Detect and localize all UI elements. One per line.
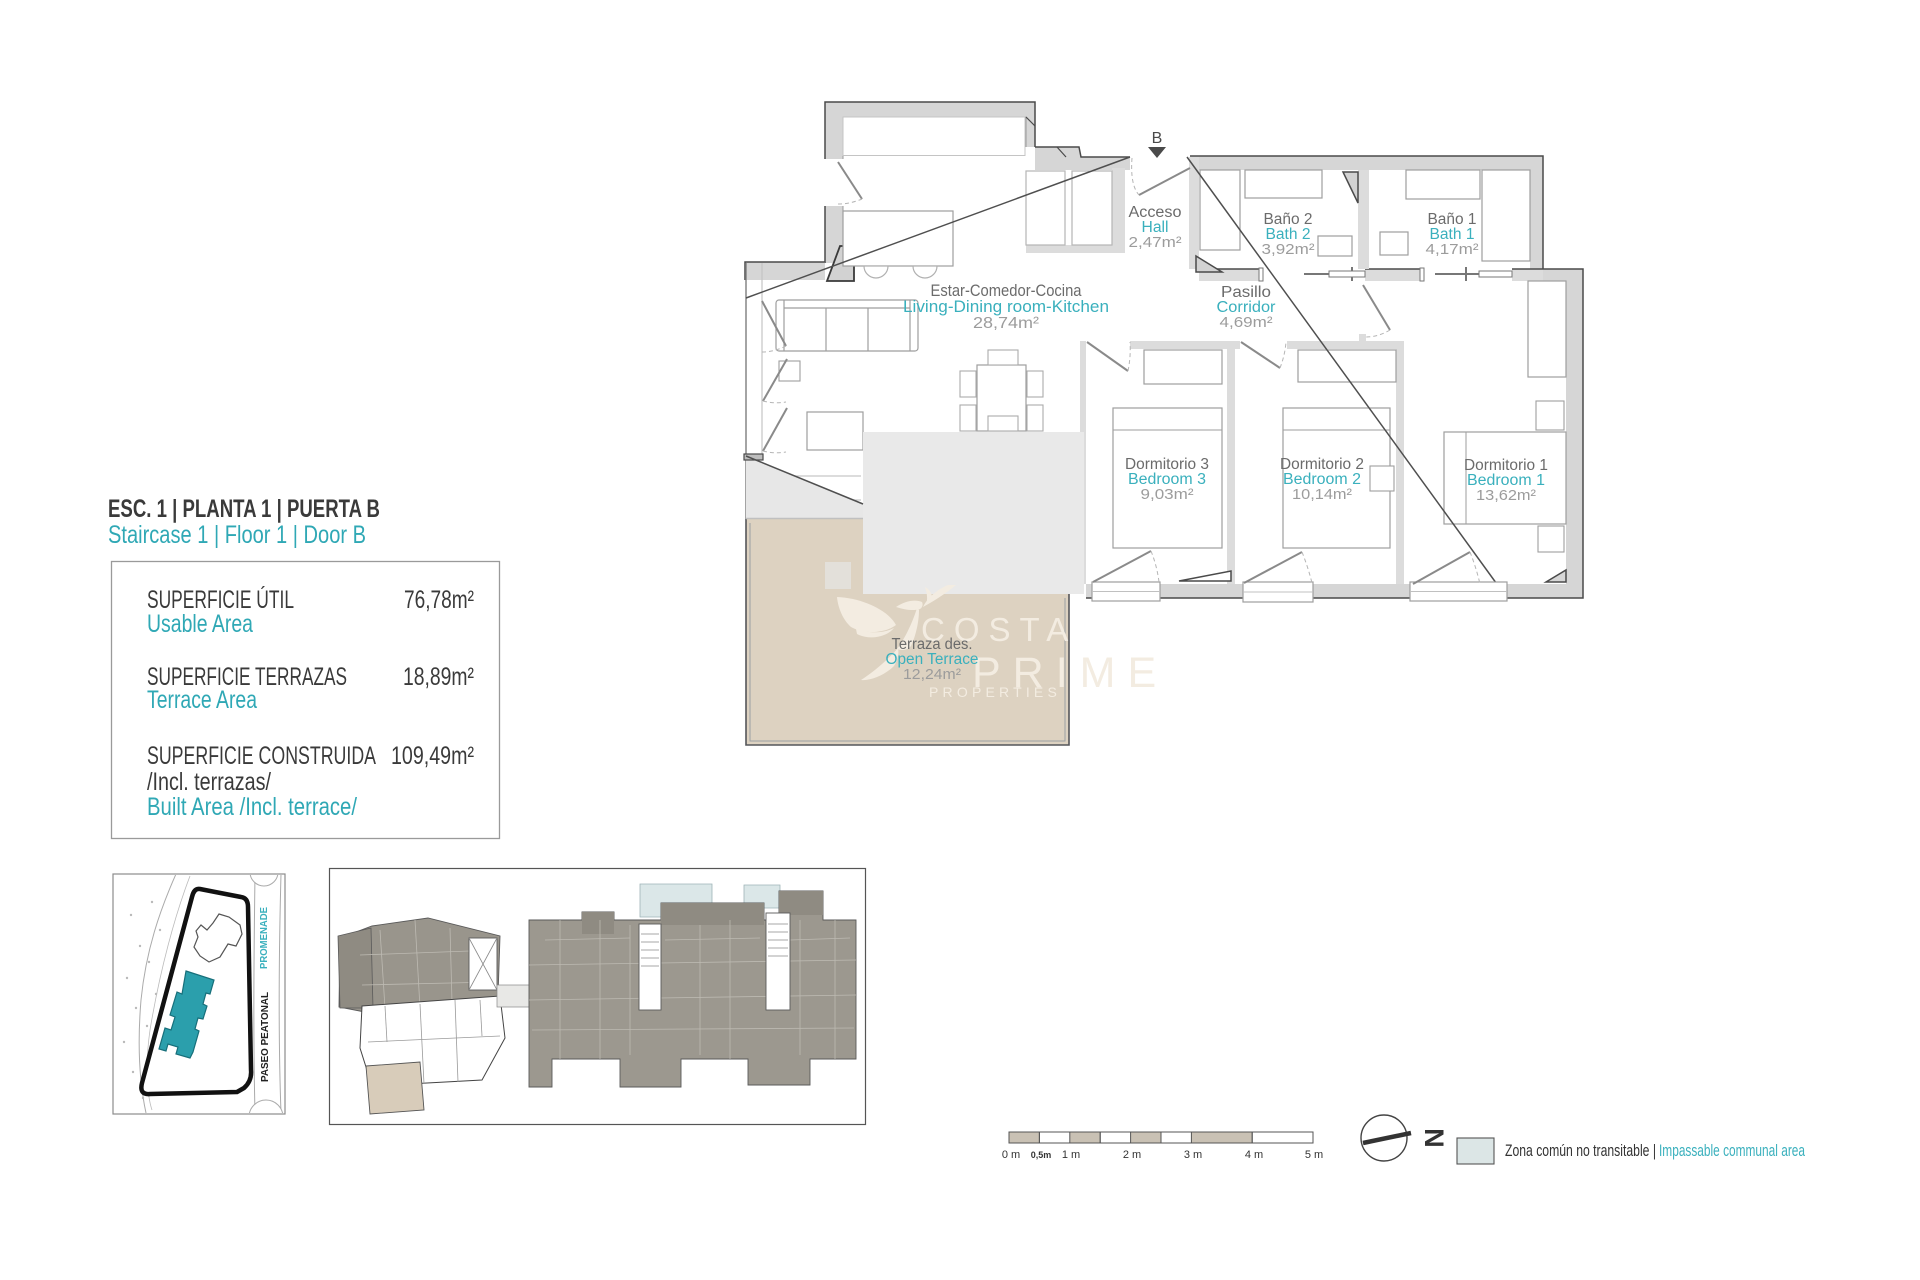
svg-text:PROMENADE: PROMENADE bbox=[258, 907, 270, 969]
svg-text:Living-Dining room-Kitchen: Living-Dining room-Kitchen bbox=[903, 298, 1109, 316]
svg-text:76,78m²: 76,78m² bbox=[404, 586, 474, 614]
svg-text:Staircase 1 | Floor 1 | Door B: Staircase 1 | Floor 1 | Door B bbox=[108, 521, 366, 549]
svg-text:Built Area /Incl. terrace/: Built Area /Incl. terrace/ bbox=[147, 793, 357, 821]
svg-text:10,14m²: 10,14m² bbox=[1292, 486, 1352, 503]
svg-text:4,69m²: 4,69m² bbox=[1220, 314, 1273, 331]
svg-text:Impassable communal area: Impassable communal area bbox=[1659, 1142, 1806, 1160]
svg-text:B: B bbox=[1152, 130, 1163, 147]
svg-text:2 m: 2 m bbox=[1123, 1149, 1141, 1161]
svg-text:9,03m²: 9,03m² bbox=[1141, 486, 1194, 503]
svg-text:PROPERTIES: PROPERTIES bbox=[929, 684, 1061, 700]
svg-text:Zona común no transitable |: Zona común no transitable | bbox=[1505, 1142, 1656, 1160]
svg-text:4,17m²: 4,17m² bbox=[1426, 241, 1479, 258]
svg-text:4 m: 4 m bbox=[1245, 1149, 1263, 1161]
svg-text:1 m: 1 m bbox=[1062, 1149, 1080, 1161]
svg-text:109,49m²: 109,49m² bbox=[391, 742, 474, 770]
svg-text:/Incl. terrazas/: /Incl. terrazas/ bbox=[147, 768, 271, 796]
svg-text:SUPERFICIE CONSTRUIDA: SUPERFICIE CONSTRUIDA bbox=[147, 742, 376, 770]
svg-text:0,5m: 0,5m bbox=[1031, 1150, 1052, 1160]
svg-text:Usable Area: Usable Area bbox=[147, 610, 253, 638]
svg-text:N: N bbox=[1419, 1128, 1449, 1148]
svg-text:0 m: 0 m bbox=[1002, 1149, 1020, 1161]
svg-text:PASEO PEATONAL: PASEO PEATONAL bbox=[259, 991, 271, 1082]
svg-text:5 m: 5 m bbox=[1305, 1149, 1323, 1161]
svg-text:13,62m²: 13,62m² bbox=[1476, 487, 1536, 504]
svg-text:3 m: 3 m bbox=[1184, 1149, 1202, 1161]
svg-text:12,24m²: 12,24m² bbox=[903, 666, 961, 683]
svg-text:28,74m²: 28,74m² bbox=[973, 315, 1040, 332]
svg-text:3,92m²: 3,92m² bbox=[1262, 241, 1315, 258]
svg-text:18,89m²: 18,89m² bbox=[403, 663, 474, 691]
svg-text:Terrace Area: Terrace Area bbox=[147, 686, 257, 714]
svg-text:2,47m²: 2,47m² bbox=[1129, 234, 1182, 251]
svg-text:ESC. 1 | PLANTA 1 | PUERTA B: ESC. 1 | PLANTA 1 | PUERTA B bbox=[108, 495, 380, 523]
